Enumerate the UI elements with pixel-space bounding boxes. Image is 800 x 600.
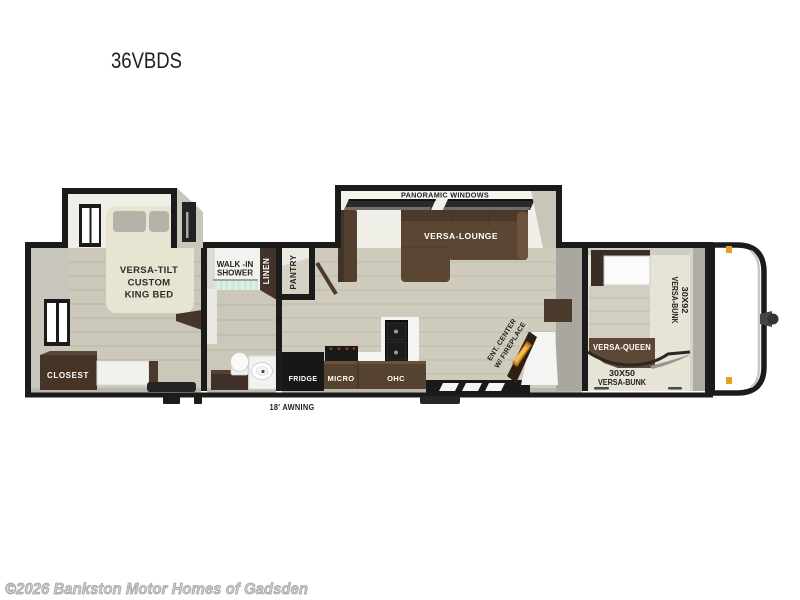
svg-text:VERSA-LOUNGE: VERSA-LOUNGE: [424, 232, 498, 241]
svg-text:CUSTOM: CUSTOM: [128, 278, 171, 289]
svg-text:KING BED: KING BED: [125, 290, 174, 301]
svg-text:SHOWER: SHOWER: [217, 269, 253, 278]
svg-text:30X50: 30X50: [609, 369, 636, 378]
svg-text:LINEN: LINEN: [262, 258, 271, 285]
svg-text:©2026 Bankston Motor Homes of: ©2026 Bankston Motor Homes of Gadsden: [5, 581, 308, 598]
svg-text:30X92: 30X92: [680, 287, 689, 315]
svg-text:36VBDS: 36VBDS: [111, 48, 182, 73]
svg-text:MICRO: MICRO: [328, 374, 355, 383]
svg-text:OHC: OHC: [387, 374, 405, 383]
svg-text:VERSA-BUNK: VERSA-BUNK: [670, 277, 679, 324]
svg-text:FRIDGE: FRIDGE: [289, 376, 318, 383]
svg-text:18' AWNING: 18' AWNING: [270, 403, 315, 412]
svg-text:VERSA-QUEEN: VERSA-QUEEN: [593, 343, 651, 352]
svg-text:VERSA-TILT: VERSA-TILT: [120, 265, 178, 276]
svg-text:VERSA-BUNK: VERSA-BUNK: [598, 378, 646, 387]
svg-text:CLOSEST: CLOSEST: [47, 371, 89, 380]
svg-text:PANORAMIC WINDOWS: PANORAMIC WINDOWS: [401, 191, 489, 200]
svg-text:PANTRY: PANTRY: [289, 254, 298, 289]
